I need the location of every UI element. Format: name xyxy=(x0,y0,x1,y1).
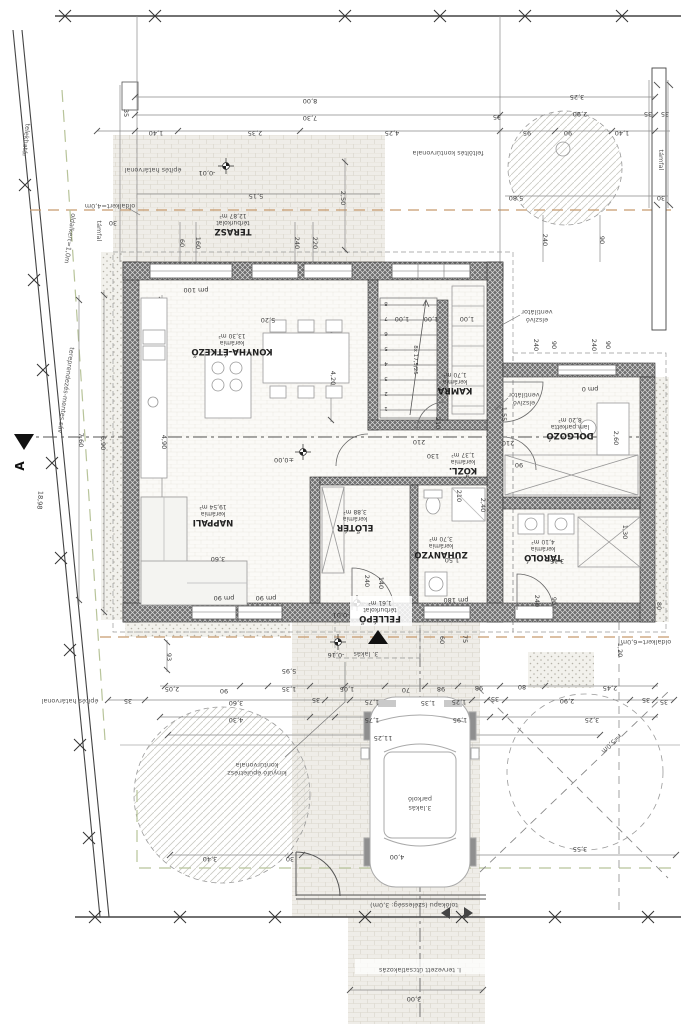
dim-label: pm 90 xyxy=(214,594,235,602)
dim-label: 8,00 xyxy=(303,97,317,105)
dim-label: 1,25 xyxy=(452,698,466,706)
dim-label: 90 xyxy=(604,341,612,349)
dim-label: 240 xyxy=(533,595,541,607)
room-label-kozl: KÖZL.kerámia1,37 m² xyxy=(449,451,477,476)
dim-label: 2,35 xyxy=(248,129,262,137)
annotation-line: kontúrvonala xyxy=(236,761,279,769)
dim-label: 6,90 xyxy=(99,436,107,450)
terrace-paving xyxy=(113,135,385,282)
dim-label: 130 xyxy=(427,452,439,460)
desk xyxy=(597,403,629,455)
room-area: 1,37 m² xyxy=(451,451,475,458)
dim-label: 90 xyxy=(220,687,228,695)
wall-center-right xyxy=(487,262,503,622)
stair-step-number: 8 xyxy=(384,300,388,306)
dim-label: 35 xyxy=(642,696,650,704)
tree-bottom-left xyxy=(134,707,310,883)
dim-label: 80 xyxy=(518,683,526,691)
annotation-stair-text: 8x 17,5/25 xyxy=(412,345,418,375)
room-area: 8,20 m² xyxy=(558,416,582,423)
dim-label: 210 xyxy=(434,417,442,429)
dim-label: 1,00 xyxy=(424,315,438,323)
dim-label: 210 xyxy=(502,439,514,447)
window-nappali-1 xyxy=(192,606,236,619)
wall-left xyxy=(123,262,139,622)
stair-step-number: 6 xyxy=(384,330,388,336)
room-material: kerámia xyxy=(220,339,245,346)
window-zuhanyzo xyxy=(424,606,470,619)
kitchen-sink xyxy=(148,397,158,407)
dim-label: 1,20 xyxy=(616,643,624,657)
annotation-section-a: A xyxy=(13,461,27,471)
dim-label: 5,95 xyxy=(282,667,296,675)
appliance-drum-1 xyxy=(525,518,537,530)
dim-label: 140 xyxy=(377,577,385,589)
dim-label: 3,60 xyxy=(211,555,225,563)
dim-label: 30 xyxy=(657,194,665,202)
room-material: kerámia xyxy=(429,542,454,549)
dim-label: 2,50 xyxy=(339,191,347,205)
dim-label: 35 xyxy=(122,109,130,117)
annotation-utcsatlakozas: I. tervezett útcsatlakozás xyxy=(378,966,461,974)
dim-label: 3,55 xyxy=(573,845,587,853)
car-mirror-left xyxy=(361,748,369,759)
dim-label: 3,25 xyxy=(570,93,584,101)
dim-label: 2,90 xyxy=(573,110,587,118)
dim-label: 90 xyxy=(550,341,558,349)
stair-step-number: 1 xyxy=(384,405,388,411)
elevation-value: -0,16 xyxy=(328,651,345,659)
annotation-epites-hatarvonal-bottom: építés határvonal xyxy=(41,697,98,705)
dim-label: 4,30 xyxy=(229,716,243,724)
chair xyxy=(270,386,286,398)
dim-label: 2,60 xyxy=(612,431,620,445)
annotation-line: elszívó xyxy=(513,399,535,407)
hob-burner-3 xyxy=(212,379,224,391)
car-roof xyxy=(384,752,456,838)
room-area: 13,30 m² xyxy=(218,332,246,339)
property-boundary-2 xyxy=(22,30,109,917)
annotation-line: 3.lakás xyxy=(408,804,432,812)
dim-label: 240 xyxy=(293,237,301,249)
room-area: 1,70 m² xyxy=(443,371,467,378)
section-marker-icon xyxy=(14,434,34,450)
annotation-line: ventilátor xyxy=(521,308,553,316)
dim-label: 4,20 xyxy=(329,371,337,385)
chair xyxy=(326,386,342,398)
dim-label: 1,30 xyxy=(621,525,629,539)
room-label-terasz: TERASZtérburkolat12,87 m² xyxy=(214,212,251,236)
wall-above-eloter xyxy=(320,477,487,485)
dim-label: 7,60 xyxy=(77,433,85,447)
elevation-value: -0,01 xyxy=(199,169,216,177)
wall-wing-right xyxy=(640,377,655,622)
wall-nappali-eloter xyxy=(310,477,320,603)
dim-label: 240 xyxy=(363,575,371,587)
dim-label: 98 xyxy=(437,685,445,693)
room-name: FELLÉPŐ xyxy=(359,613,401,625)
room-material: térburkolat xyxy=(363,606,397,613)
dim-label: 160 xyxy=(194,237,202,249)
stair-step-number: 4 xyxy=(384,360,388,366)
annotation-lakas: 3. lakás xyxy=(353,650,379,658)
room-material: kerámia xyxy=(443,378,468,385)
dim-label: 60 xyxy=(178,239,186,247)
chair xyxy=(298,320,314,332)
dim-label: 240 xyxy=(532,339,540,351)
dim-label: 30 xyxy=(109,219,117,227)
dim-label: 1,35 xyxy=(282,685,296,693)
annotation-kinyulo: kinyúló épületrészkontúrvonala xyxy=(227,761,287,777)
dim-label: pm 0 xyxy=(582,385,599,393)
dim-label: 3,15 xyxy=(550,557,564,565)
dim-label: 18,98 xyxy=(35,491,44,510)
dim-label: 35 xyxy=(644,110,652,118)
dim-label: 2,05 xyxy=(165,685,179,693)
floor-plan: TERASZtérburkolat12,87 m² KONYHA-ÉTKEZŐk… xyxy=(0,0,681,1024)
room-name: KAMRA xyxy=(437,385,472,395)
toilet-tank xyxy=(424,490,442,498)
wall-dolgozo-tarolo xyxy=(503,497,640,509)
dim-label: 3,00 xyxy=(407,995,421,1003)
annotation-tolokapu: tolókapu (szélesség: 3,0m) xyxy=(370,901,458,909)
dim-label: 5,20 xyxy=(261,316,275,324)
tree-top-right xyxy=(508,111,622,225)
dim-label: 1,75 xyxy=(365,716,379,724)
dim-label: 1,50 xyxy=(445,556,459,564)
dim-label: 75 xyxy=(461,635,469,643)
annotation-line: elszívó xyxy=(526,316,548,324)
appliance-drum-2 xyxy=(555,518,567,530)
hob-burner-4 xyxy=(230,379,242,391)
annotation-radius: r=5,0m xyxy=(600,732,623,755)
wall-below-kamra xyxy=(368,420,487,430)
room-material: kerámia xyxy=(343,515,368,522)
dim-label: 1,00 xyxy=(395,315,409,323)
chair xyxy=(298,386,314,398)
annotation-line: kinyúló épületrész xyxy=(227,769,287,777)
car-mirror-right xyxy=(471,748,479,759)
room-area: 1,61 m² xyxy=(368,599,392,606)
dim-label: 220 xyxy=(311,237,319,249)
room-area: 3,70 m² xyxy=(429,535,453,542)
wall-stairs-left xyxy=(368,280,378,430)
stair-step-number: 3 xyxy=(384,375,388,381)
gravel-strip-bottom xyxy=(125,622,290,637)
dim-label: 4,25 xyxy=(385,129,399,137)
gravel-patch xyxy=(528,652,594,688)
room-material: lam.parketta xyxy=(550,423,589,430)
room-name: KÖZL. xyxy=(449,465,477,476)
annotation-oldalkert-1: oldalkert=1,0m xyxy=(62,213,77,264)
annotation-elszivo-1: elszívóventilátor xyxy=(521,308,553,324)
dim-label: 1,35 xyxy=(421,699,435,707)
dim-label: 2,40 xyxy=(479,498,487,512)
gravel-strip-right xyxy=(655,377,669,622)
dim-label: 3,25 xyxy=(585,716,599,724)
annotation-epites-hatarvonal-top: építés határvonal xyxy=(124,166,181,174)
dim-label: 35 xyxy=(493,113,501,121)
dim-label: 1,00 xyxy=(460,315,474,323)
dim-label: 1,75 xyxy=(365,698,379,706)
chair xyxy=(326,320,342,332)
stair-step-number: 7 xyxy=(384,315,388,321)
dim-label: 30 xyxy=(286,855,294,863)
dim-label: 3,40 xyxy=(203,855,217,863)
annotation-oldalkert-6: oldalkert=6,0m xyxy=(621,638,672,646)
dim-label: 4,00 xyxy=(390,853,404,861)
dim-label: 240 xyxy=(541,234,549,246)
elevation-value: -0,01 xyxy=(333,611,350,619)
dim-label: 90 xyxy=(564,129,572,137)
floor-plan-svg: TERASZtérburkolat12,87 m² KONYHA-ÉTKEZŐk… xyxy=(0,0,681,1024)
dim-label: 7,30 xyxy=(303,114,317,122)
dim-label: 1,40 xyxy=(149,129,163,137)
elevation-value: ±0,00 xyxy=(274,456,294,464)
room-name: DOLGOZÓ xyxy=(546,430,593,442)
annotation-telekhatar: telekhatár xyxy=(20,123,31,157)
dim-label: 35 xyxy=(660,698,668,706)
dim-label: 35 xyxy=(661,110,669,118)
dim-label: pm 90 xyxy=(256,594,277,602)
dim-label: 5,15 xyxy=(249,192,263,200)
dim-label: 90 xyxy=(515,461,523,469)
dim-label: 90 xyxy=(598,236,606,244)
washing-machine-drum xyxy=(429,577,443,591)
dim-label: 1,40 xyxy=(615,129,629,137)
dim-label: 1,95 xyxy=(453,716,467,724)
dim-label: 4,90 xyxy=(160,435,168,449)
dim-label: 95 xyxy=(523,129,531,137)
dim-label: 60 xyxy=(438,636,446,644)
dim-label: 35 xyxy=(124,697,132,705)
dim-label: 1,05 xyxy=(340,685,354,693)
room-name: NAPPALI xyxy=(193,517,234,527)
room-area: 12,87 m² xyxy=(219,212,247,219)
dim-label: 5,80 xyxy=(509,194,523,202)
dim-label: 2,90 xyxy=(560,697,574,705)
room-material: kerámia xyxy=(531,545,556,552)
dim-label: 210 xyxy=(413,438,425,446)
dim-label: 70 xyxy=(402,686,410,694)
car-headlight xyxy=(378,700,396,707)
car xyxy=(361,697,479,887)
room-name: KONYHA-ÉTKEZŐ xyxy=(191,346,272,358)
kitchen-counter xyxy=(141,298,167,478)
room-area: 3,88 m² xyxy=(343,508,367,515)
room-name: TERASZ xyxy=(214,226,251,236)
annotation-parkolo: 3.lakásparkoló xyxy=(408,795,432,812)
annotation-feltoltes: feltöltés kontúrvonala xyxy=(412,149,483,157)
annotation-line: ventilátor xyxy=(508,391,540,399)
dim-label: 35 xyxy=(491,695,499,703)
dim-label: 2,45 xyxy=(603,684,617,692)
dim-label: 11,25 xyxy=(374,734,393,742)
room-name: ELŐTÉR xyxy=(336,522,373,534)
green-zone-line xyxy=(62,90,105,740)
annotation-oldalkert-4: oldalkert=4,0m xyxy=(85,202,136,210)
room-material: kerámia xyxy=(451,458,476,465)
dim-label: 93 xyxy=(165,653,173,661)
dim-label: 240 xyxy=(590,339,598,351)
room-material: térburkolat xyxy=(216,219,250,226)
dim-label: 3,60 xyxy=(229,699,243,707)
annotation-tereprendezes: tereprendezés-mentes sáv xyxy=(56,347,76,434)
toilet xyxy=(426,496,440,514)
annotation-tamfal-right: támfal xyxy=(657,150,665,171)
dim-label: 98 xyxy=(475,684,483,692)
dim-label: pm 180 xyxy=(444,596,469,604)
dim-label: 1,55 xyxy=(500,407,508,421)
room-area: 4,10 m² xyxy=(531,538,555,545)
annotation-line: parkoló xyxy=(408,795,432,803)
wall-eloter-zuhanyzo xyxy=(410,485,418,603)
dim-label: 210 xyxy=(455,490,463,502)
hob-burner-1 xyxy=(212,362,224,374)
dim-label: pm 100 xyxy=(184,286,209,294)
hob-burner-2 xyxy=(230,362,242,374)
room-material: kerámia xyxy=(201,510,226,517)
dim-label: 80 xyxy=(655,602,663,610)
door-tarolo xyxy=(515,606,553,619)
kitchen-appliance-2 xyxy=(143,346,165,360)
kitchen-appliance-1 xyxy=(143,330,165,344)
dim-label: 35 xyxy=(312,696,320,704)
dim-label: 90 xyxy=(550,597,558,605)
window-nappali-2 xyxy=(238,606,282,619)
stair-step-number: 5 xyxy=(384,345,388,351)
room-area: 19,54 m² xyxy=(199,503,227,510)
annotation-tamfal-left: támfal xyxy=(95,221,103,242)
stair-step-number: 2 xyxy=(384,390,388,396)
